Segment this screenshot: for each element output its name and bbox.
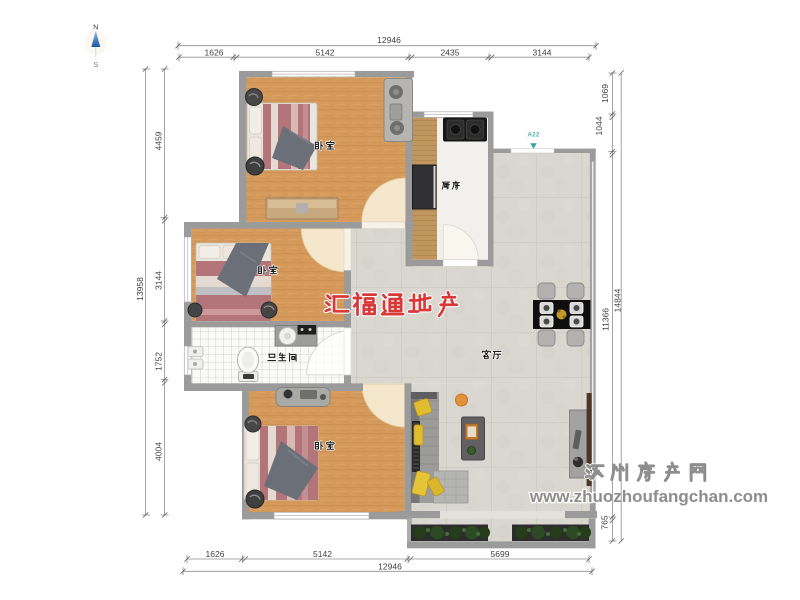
svg-text:5699: 5699 bbox=[491, 549, 510, 559]
svg-text:S: S bbox=[93, 60, 98, 69]
svg-text:11366: 11366 bbox=[601, 308, 611, 331]
svg-text:1044: 1044 bbox=[594, 116, 604, 135]
svg-text:14844: 14844 bbox=[613, 288, 623, 312]
svg-text:3144: 3144 bbox=[533, 47, 552, 57]
svg-text:3144: 3144 bbox=[154, 271, 164, 290]
svg-text:4004: 4004 bbox=[154, 442, 164, 461]
svg-text:12946: 12946 bbox=[377, 35, 401, 45]
svg-text:1626: 1626 bbox=[206, 549, 225, 559]
svg-text:12946: 12946 bbox=[378, 562, 402, 572]
svg-text:5142: 5142 bbox=[313, 549, 332, 559]
svg-text:4459: 4459 bbox=[154, 131, 164, 150]
svg-text:13958: 13958 bbox=[135, 277, 145, 301]
svg-text:1752: 1752 bbox=[154, 352, 164, 371]
svg-text:1069: 1069 bbox=[600, 84, 610, 103]
svg-text:www.zhuozhoufangchan.com: www.zhuozhoufangchan.com bbox=[529, 487, 768, 506]
svg-text:765: 765 bbox=[600, 515, 610, 529]
svg-text:N: N bbox=[93, 23, 98, 32]
svg-text:A22: A22 bbox=[527, 132, 539, 139]
svg-text:5142: 5142 bbox=[316, 47, 335, 57]
svg-text:2435: 2435 bbox=[441, 47, 460, 57]
svg-text:1626: 1626 bbox=[205, 47, 224, 57]
